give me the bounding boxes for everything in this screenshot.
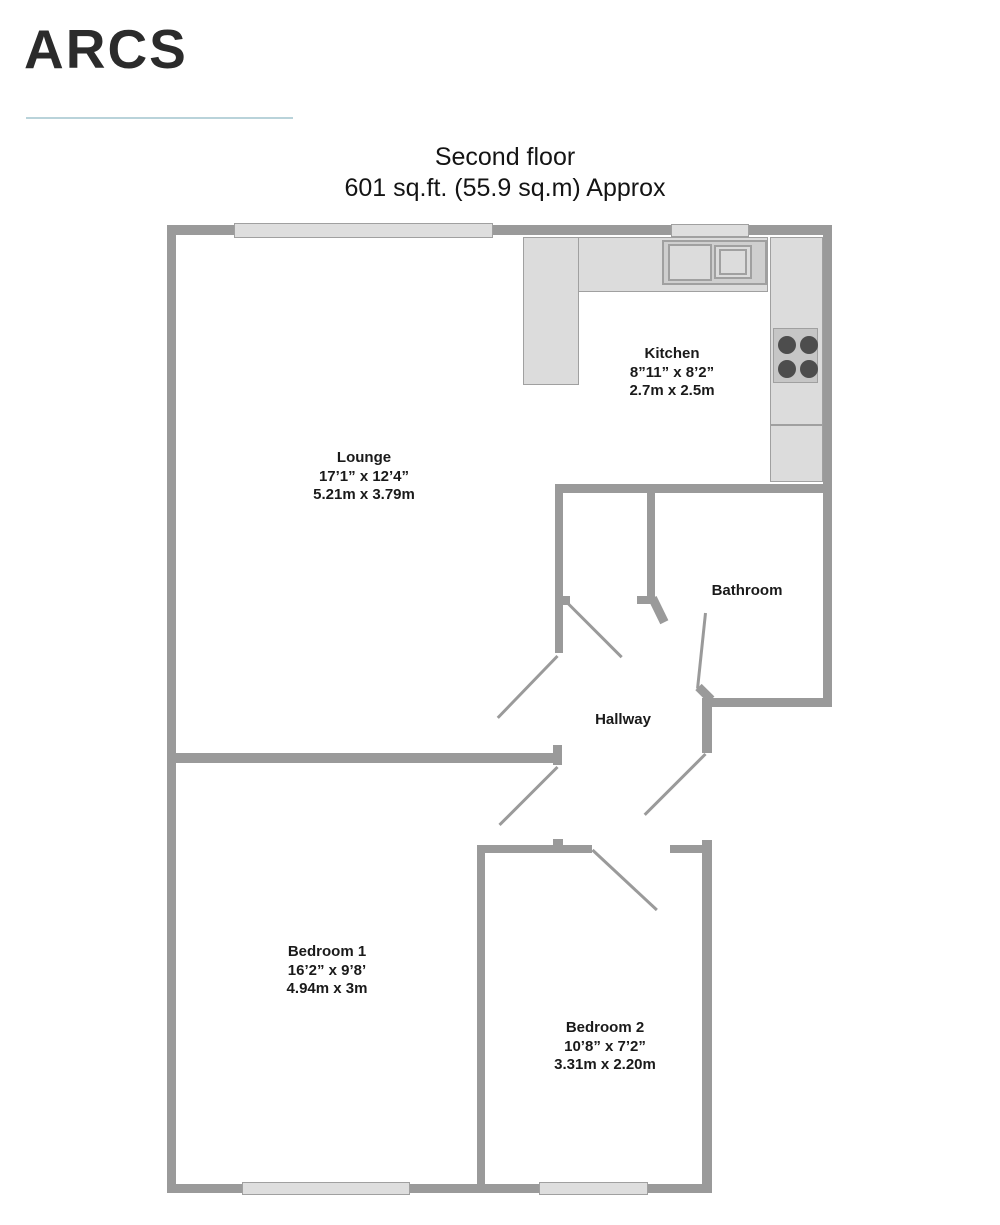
wall-outer-left [167, 225, 176, 1193]
hallway-label: Hallway [595, 711, 651, 730]
door-lounge [497, 655, 559, 719]
lounge-dims-imperial: 17’1” x 12’4” [313, 468, 415, 487]
kitchen-name: Kitchen [629, 345, 714, 364]
bedroom1-dims-imperial: 16’2” x 9’8’ [287, 962, 368, 981]
floor-plan: Lounge 17’1” x 12’4” 5.21m x 3.79m Kitch… [0, 0, 1000, 1225]
bathroom-label: Bathroom [712, 582, 783, 601]
door-bedroom2 [591, 849, 657, 911]
counter-section-divider [771, 424, 822, 426]
lounge-name: Lounge [313, 449, 415, 468]
bedroom2-label: Bedroom 2 10’8” x 7’2” 3.31m x 2.20m [554, 1019, 656, 1075]
jamb-bedroom1-door [553, 745, 562, 765]
bedroom1-name: Bedroom 1 [287, 943, 368, 962]
door-bedroom1 [498, 766, 558, 826]
wall-bedroom2-right [702, 840, 712, 1193]
wall-stub-bathroom-upper [648, 596, 668, 624]
window-bedroom2 [539, 1182, 648, 1195]
wall-bedroom2-left [477, 845, 485, 1193]
bedroom2-dims-metric: 3.31m x 2.20m [554, 1056, 656, 1075]
wall-bathroom-bottom [702, 698, 832, 707]
lounge-label: Lounge 17’1” x 12’4” 5.21m x 3.79m [313, 449, 415, 505]
hob-burner-icon [800, 336, 818, 354]
hob-burner-icon [800, 360, 818, 378]
kitchen-dims-imperial: 8”11” x 8’2” [629, 364, 714, 383]
kitchen-dims-metric: 2.7m x 2.5m [629, 382, 714, 401]
kitchen-label: Kitchen 8”11” x 8’2” 2.7m x 2.5m [629, 345, 714, 401]
hob-burner-icon [778, 360, 796, 378]
kitchen-counter-left [523, 237, 579, 385]
wall-outer-right [823, 225, 832, 707]
window-bedroom1 [242, 1182, 410, 1195]
door-lounge-hallway [565, 601, 622, 658]
wall-bedroom1-top [167, 753, 553, 763]
lounge-dims-metric: 5.21m x 3.79m [313, 486, 415, 505]
wall-kitchen-bottom [555, 484, 832, 493]
sink-basin-left [668, 244, 712, 281]
door-entrance [644, 753, 707, 816]
wall-hallway-bathroom [702, 698, 712, 753]
bedroom1-label: Bedroom 1 16’2” x 9’8’ 4.94m x 3m [287, 943, 368, 999]
wall-lounge-hallway [555, 484, 563, 653]
door-bathroom [696, 613, 707, 689]
wall-bedroom2-top-left [477, 845, 592, 853]
wall-bathroom-left [647, 493, 655, 600]
hallway-name: Hallway [595, 711, 651, 730]
bedroom2-name: Bedroom 2 [554, 1019, 656, 1038]
bedroom2-dims-imperial: 10’8” x 7’2” [554, 1038, 656, 1057]
bathroom-name: Bathroom [712, 582, 783, 601]
window-lounge [234, 223, 493, 238]
bedroom1-dims-metric: 4.94m x 3m [287, 980, 368, 999]
hob [773, 328, 818, 383]
hob-burner-icon [778, 336, 796, 354]
floorplan-page: ARCS Second floor 601 sq.ft. (55.9 sq.m)… [0, 0, 1000, 1225]
window-kitchen [671, 224, 749, 237]
jamb-bedroom2-top [553, 839, 563, 845]
sink-basin-right-inner [719, 249, 747, 275]
